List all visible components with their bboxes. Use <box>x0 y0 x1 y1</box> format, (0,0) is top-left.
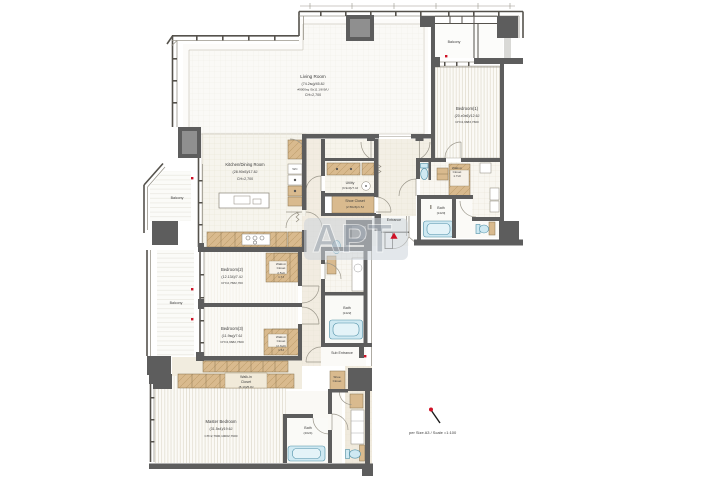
svg-text:(2024): (2024) <box>304 431 313 435</box>
svg-text:Sub Entrance: Sub Entrance <box>331 351 353 355</box>
svg-text:Balcony: Balcony <box>448 40 461 44</box>
svg-text:Closet: Closet <box>277 339 286 343</box>
svg-text:Utility: Utility <box>346 181 355 185</box>
svg-text:CH=2,9682,7600: CH=2,9682,7600 <box>220 340 244 344</box>
svg-text:CH=2,700: CH=2,700 <box>305 93 321 97</box>
svg-text:per Size A3 / Scale =1:100: per Size A3 / Scale =1:100 <box>409 430 457 435</box>
svg-text:Bath: Bath <box>304 426 311 430</box>
svg-text:[1420]: [1420] <box>437 211 446 215</box>
svg-text:Walk-in: Walk-in <box>240 375 252 379</box>
svg-text:(11.9sq)/7.6J: (11.9sq)/7.6J <box>222 334 243 338</box>
svg-text:Kitchen/Dining Room: Kitchen/Dining Room <box>225 162 265 167</box>
svg-text:Balcony: Balcony <box>171 196 184 200</box>
svg-text:Closet: Closet <box>333 379 342 383</box>
svg-text:Bedroom(3): Bedroom(3) <box>221 326 244 331</box>
svg-text:(74.2sq)/45.8J: (74.2sq)/45.8J <box>302 82 325 86</box>
svg-text:Shoe Closet: Shoe Closet <box>345 199 365 203</box>
svg-text:1.5J: 1.5J <box>278 348 284 352</box>
svg-text:#9000sq /5x11 1/8 B/U: #9000sq /5x11 1/8 B/U <box>297 88 328 92</box>
svg-text:CH=2,7682,700: CH=2,7682,700 <box>221 281 243 285</box>
svg-text:Bath: Bath <box>437 206 444 210</box>
svg-text:WC: WC <box>292 167 298 171</box>
svg-text:[1422]: [1422] <box>343 311 352 315</box>
svg-text:Master Bedroom: Master Bedroom <box>206 419 237 424</box>
svg-text:Bedroom(1): Bedroom(1) <box>456 106 479 111</box>
svg-text:CH=2,9683,7600: CH=2,9683,7600 <box>455 120 479 124</box>
svg-text:Closet: Closet <box>277 266 286 270</box>
svg-text:1.7J: 1.7J <box>278 275 284 279</box>
svg-text:(20.x0x6)/12.6J: (20.x0x6)/12.6J <box>455 114 480 118</box>
svg-text:Closet: Closet <box>241 380 251 384</box>
svg-text:Bath: Bath <box>343 306 350 310</box>
svg-text:1.7x0: 1.7x0 <box>453 174 461 178</box>
svg-text:CH=2,7600,10002,7600: CH=2,7600,10002,7600 <box>205 434 238 438</box>
svg-text:(2.56x6)/1.5J: (2.56x6)/1.5J <box>346 205 365 209</box>
svg-text:APT: APT <box>312 217 392 261</box>
svg-text:(12.134)/7.4J: (12.134)/7.4J <box>221 275 242 279</box>
svg-text:Balcony: Balcony <box>170 301 183 305</box>
svg-text:(28.90x5)/17.8J: (28.90x5)/17.8J <box>233 170 258 174</box>
svg-text:Living Room: Living Room <box>300 74 326 79</box>
svg-text:(8.13)/5.8J: (8.13)/5.8J <box>239 385 254 389</box>
svg-text:(3.9x0)/7.4J: (3.9x0)/7.4J <box>342 186 359 190</box>
svg-text:Bedroom(2): Bedroom(2) <box>221 267 244 272</box>
svg-text:(31.5x4)/19.6J: (31.5x4)/19.6J <box>210 427 233 431</box>
svg-text:Entrance: Entrance <box>387 218 401 222</box>
svg-text:CH=2,700: CH=2,700 <box>237 177 253 181</box>
